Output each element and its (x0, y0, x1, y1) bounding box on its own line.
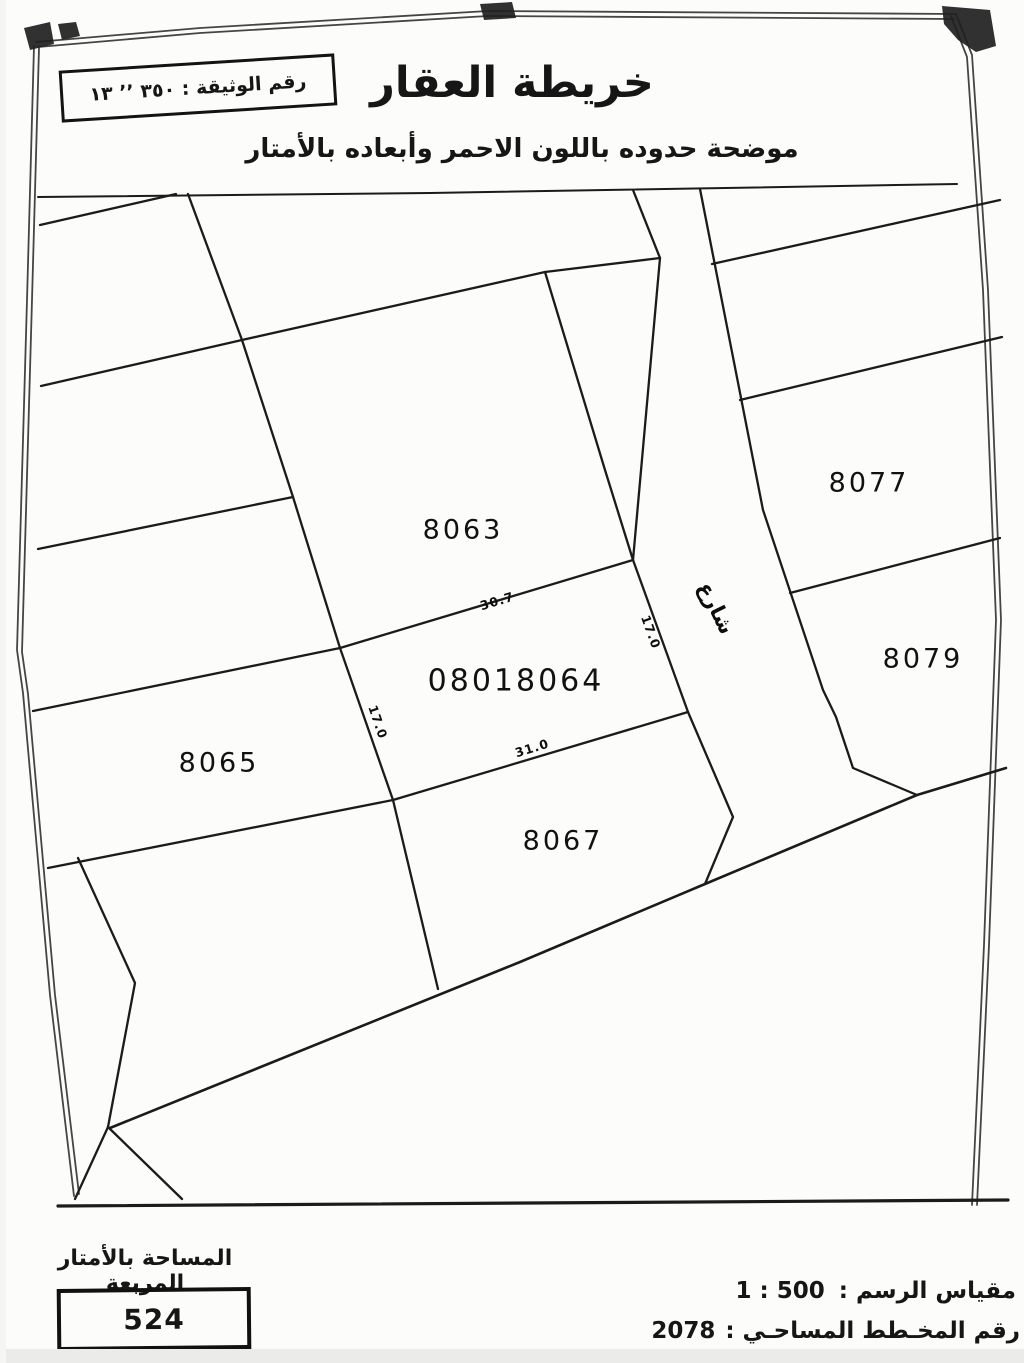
column-divider-line (188, 194, 438, 989)
parcel-label-8063: 8063 (423, 515, 504, 546)
outer-border (17, 11, 1001, 1205)
row-line-b (38, 497, 293, 549)
parcel-8063-right-edge (545, 272, 633, 560)
street-left-line (633, 190, 733, 884)
plan-number-row: رقم المخـطط المساحـي : 2078 (640, 1318, 1020, 1344)
parcel-label-8079: 8079 (883, 644, 964, 675)
corner-mark-top-middle (480, 2, 516, 20)
border-left-inner (22, 48, 79, 1194)
row-line-a (41, 258, 660, 386)
parcel-label-08018064: 08018064 (428, 664, 605, 699)
top-left-sliver-line (40, 194, 176, 225)
diagonal-road-line (110, 768, 1006, 1128)
scale-value: 1 : 500 (736, 1278, 825, 1304)
scan-edge-left (0, 0, 6, 1363)
plan-number-label: رقم المخـطط المساحـي : (725, 1318, 1020, 1344)
bottom-left-leg-right (108, 1127, 182, 1199)
parcel-8077-top-edge (740, 337, 1002, 400)
page-subtitle: موضحة حدوده باللون الاحمر وأبعاده بالأمت… (212, 134, 832, 164)
map-bottom-line (58, 1200, 1008, 1206)
parcel-label-8065: 8065 (179, 748, 260, 779)
plan-number-value: 2078 (651, 1318, 715, 1344)
border-top-inner (38, 16, 954, 47)
scanned-cadastral-map-page: رقم الوثيقة : ٣٥٠ ٬٬ ١٣ خريطة العقار موض… (0, 0, 1024, 1363)
scan-edge-bottom (0, 1349, 1024, 1363)
bottom-left-steep-line (78, 858, 135, 1127)
corner-mark-top-left-2 (58, 22, 80, 40)
corner-mark-top-right (942, 6, 996, 52)
area-value: 524 (123, 1302, 185, 1336)
scale-row: مقياس الرسم : 1 : 500 (668, 1278, 1016, 1304)
border-right-outer (956, 14, 1001, 1205)
parcel-8077-8079-boundary (790, 538, 1000, 593)
bottom-left-leg-left (75, 1127, 108, 1199)
area-value-box: 524 (57, 1287, 252, 1351)
scale-label: مقياس الرسم : (839, 1278, 1016, 1304)
document-number-text: رقم الوثيقة : ٣٥٠ ٬٬ ١٣ (89, 70, 307, 106)
page-title: خريطة العقار (312, 58, 712, 108)
parcel-label-8077: 8077 (829, 468, 910, 499)
corner-marks (24, 2, 996, 52)
parcel-label-8067: 8067 (523, 826, 604, 857)
border-right-inner (951, 16, 996, 1205)
right-column-line-top (712, 200, 1000, 264)
